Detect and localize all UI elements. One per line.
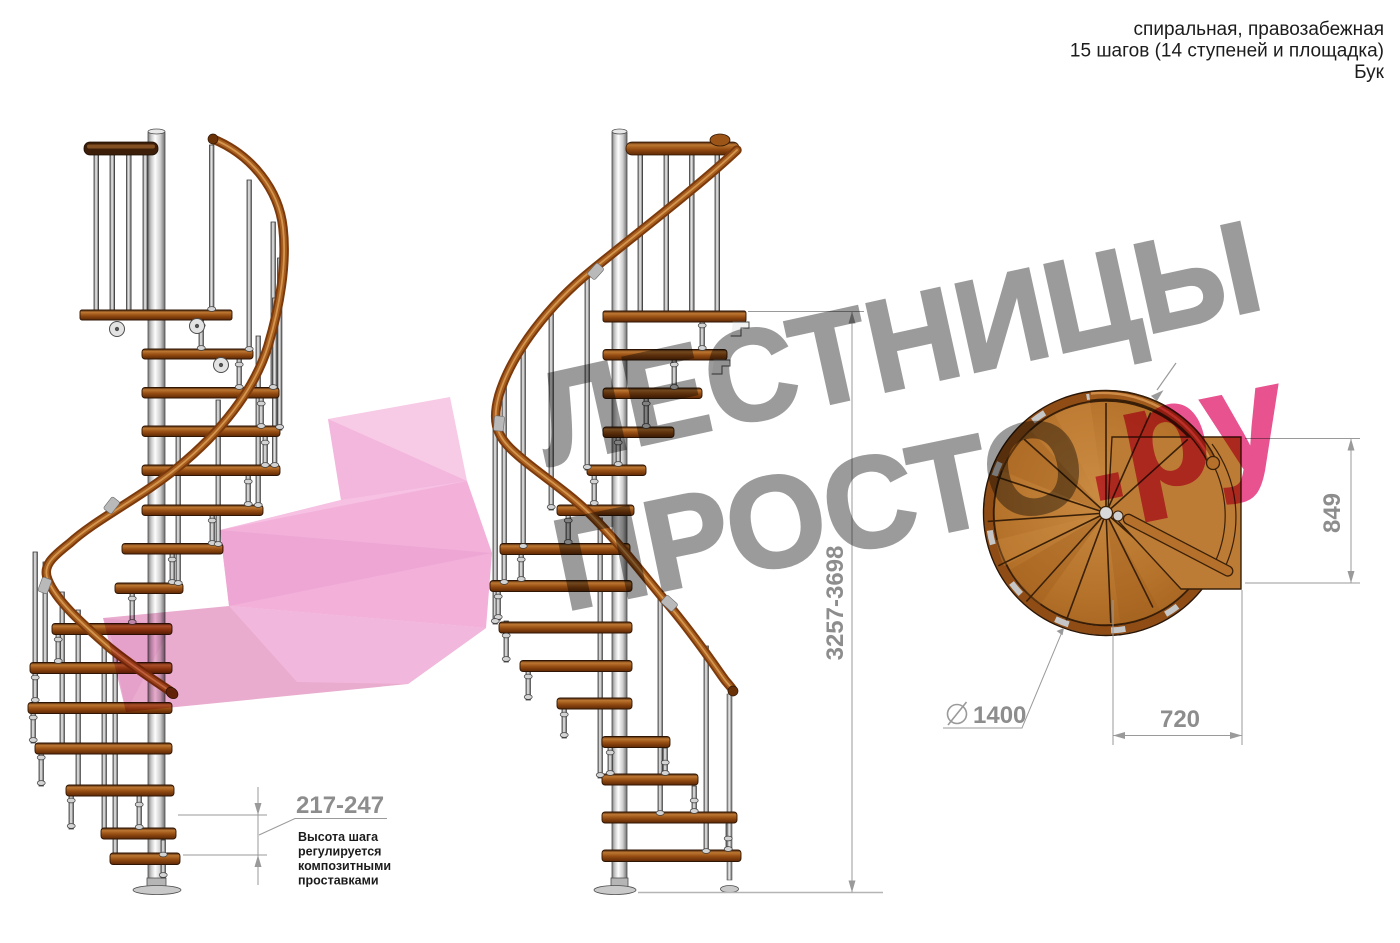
svg-text:720: 720	[1160, 706, 1200, 733]
svg-text:217-247: 217-247	[296, 792, 384, 819]
svg-text:Бук: Бук	[1354, 62, 1385, 83]
svg-text:15 шагов (14 ступеней и площад: 15 шагов (14 ступеней и площадка)	[1070, 41, 1384, 62]
svg-text:1400: 1400	[973, 702, 1026, 729]
svg-text:проставками: проставками	[298, 874, 379, 888]
svg-text:регулируется: регулируется	[298, 845, 381, 859]
svg-text:спиральная, правозабежная: спиральная, правозабежная	[1134, 19, 1384, 40]
svg-text:композитными: композитными	[298, 859, 391, 873]
svg-text:849: 849	[1319, 493, 1346, 533]
svg-text:Высота шага: Высота шага	[298, 830, 379, 844]
